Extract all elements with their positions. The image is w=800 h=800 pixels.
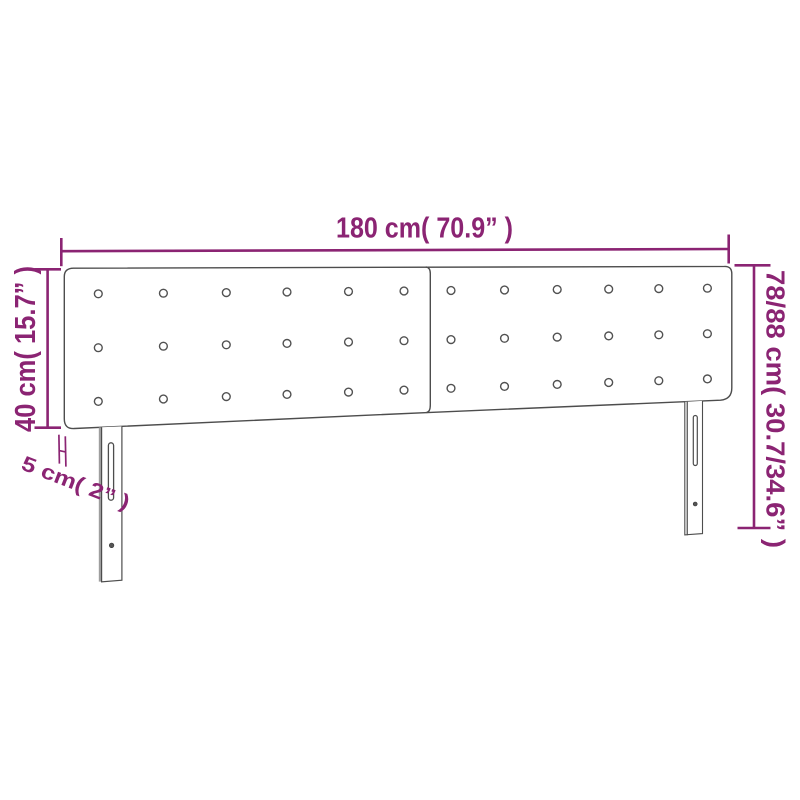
svg-text:180 cm( 70.9” ): 180 cm( 70.9” ) — [336, 212, 513, 244]
svg-text:40 cm( 15.7” ): 40 cm( 15.7” ) — [10, 266, 42, 432]
svg-text:78/88 cm( 30.7/34.6” ): 78/88 cm( 30.7/34.6” ) — [761, 270, 789, 548]
